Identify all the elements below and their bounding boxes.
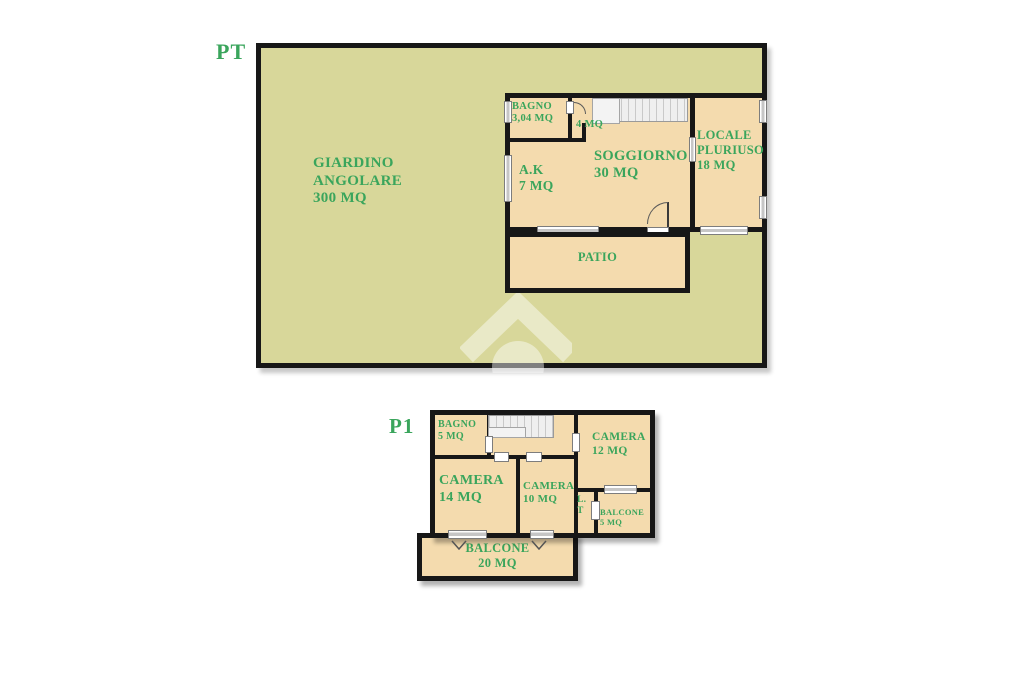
balcony-20: BALCONE 20 MQ xyxy=(417,533,578,581)
wall xyxy=(690,98,695,227)
balcone20-area: 20 MQ xyxy=(466,556,530,571)
room-ak-name: A.K xyxy=(519,162,554,178)
house-pt: BAGNO 3,04 MQ 4 MQ SOGGIORNO 30 MQ LOCAL… xyxy=(505,93,762,232)
room-camera12-label: CAMERA 12 MQ xyxy=(592,431,646,458)
door-symbol xyxy=(494,452,509,462)
door-symbol xyxy=(591,501,600,520)
window-symbol xyxy=(504,101,512,123)
room-locale-area: 18 MQ xyxy=(697,158,764,173)
room-patio-label: PATIO xyxy=(578,250,617,265)
balcone5-label: BALCONE 5 MQ xyxy=(600,507,644,527)
window-symbol xyxy=(759,196,767,219)
room-camera14-label: CAMERA 14 MQ xyxy=(439,473,504,506)
room-disimpegno-label: 4 MQ xyxy=(576,119,603,131)
room-soggiorno-label: SOGGIORNO 30 MQ xyxy=(594,148,688,182)
watermark-logo-icon xyxy=(460,293,572,373)
room-bagno-p1-name: BAGNO xyxy=(438,419,476,431)
floor-label-pt: PT xyxy=(216,39,246,65)
wall xyxy=(516,459,520,533)
door-symbol xyxy=(566,101,574,114)
garden-label-line2: ANGOLARE xyxy=(313,173,402,191)
door-symbol xyxy=(572,433,580,452)
floorplan-image: PT GIARDINO ANGOLARE 300 MQ xyxy=(0,0,1024,682)
room-locale-line2: PLURIUSO xyxy=(697,143,764,158)
door-swing-arc xyxy=(574,102,586,114)
room-camera12-area: 12 MQ xyxy=(592,445,646,459)
window-symbol xyxy=(504,155,512,202)
room-lavanderia-label: L. T xyxy=(577,495,586,517)
balcone5-name: BALCONE xyxy=(600,507,644,517)
garden-label-line1: GIARDINO xyxy=(313,155,402,173)
patio-area: PATIO xyxy=(505,232,690,293)
room-camera10-label: CAMERA 10 MQ xyxy=(523,480,574,506)
room-bagno-pt-label: BAGNO 3,04 MQ xyxy=(512,101,553,126)
door-symbol xyxy=(530,530,554,539)
room-lt-line2: T xyxy=(577,506,586,517)
door-swing-arc xyxy=(647,202,668,224)
room-camera10-area: 10 MQ xyxy=(523,493,574,506)
floor-label-p1: P1 xyxy=(389,414,414,439)
room-soggiorno-area: 30 MQ xyxy=(594,165,688,182)
balcone20-label: BALCONE 20 MQ xyxy=(466,541,530,571)
room-camera10-name: CAMERA xyxy=(523,480,574,493)
room-camera14-name: CAMERA xyxy=(439,473,504,490)
window-symbol xyxy=(689,137,696,162)
room-ak-area: 7 MQ xyxy=(519,178,554,194)
wall xyxy=(510,138,586,142)
window-symbol xyxy=(604,485,637,494)
garden-label-area: 300 MQ xyxy=(313,190,402,208)
room-camera12-name: CAMERA xyxy=(592,431,646,445)
garden-label: GIARDINO ANGOLARE 300 MQ xyxy=(313,155,402,208)
room-bagno-p1-label: BAGNO 5 MQ xyxy=(438,419,476,443)
door-swing-icon xyxy=(531,540,547,550)
room-soggiorno-name: SOGGIORNO xyxy=(594,148,688,165)
balcone5-area: 5 MQ xyxy=(600,517,644,527)
room-disimpegno-area: 4 MQ xyxy=(576,119,603,131)
room-camera14-area: 14 MQ xyxy=(439,490,504,507)
stairs-landing xyxy=(488,427,526,438)
door-symbol xyxy=(448,530,487,539)
room-locale-line1: LOCALE xyxy=(697,128,764,143)
room-locale-pluriuso-label: LOCALE PLURIUSO 18 MQ xyxy=(697,128,764,172)
room-angolo-cottura-label: A.K 7 MQ xyxy=(519,162,554,194)
door-symbol xyxy=(526,452,542,462)
room-bagno-p1-area: 5 MQ xyxy=(438,431,476,443)
garden-area: GIARDINO ANGOLARE 300 MQ xyxy=(256,43,767,368)
door-swing-icon xyxy=(451,540,467,550)
window-symbol xyxy=(759,100,767,123)
door-symbol xyxy=(485,436,493,453)
room-bagno-pt-name: BAGNO xyxy=(512,101,553,113)
balcone20-name: BALCONE xyxy=(466,541,530,556)
window-symbol xyxy=(700,226,748,235)
room-lt-line1: L. xyxy=(577,495,586,506)
room-bagno-pt-area: 3,04 MQ xyxy=(512,113,553,125)
house-p1: BAGNO 5 MQ CAMERA 12 MQ CAMERA 14 MQ CAM… xyxy=(430,410,655,538)
